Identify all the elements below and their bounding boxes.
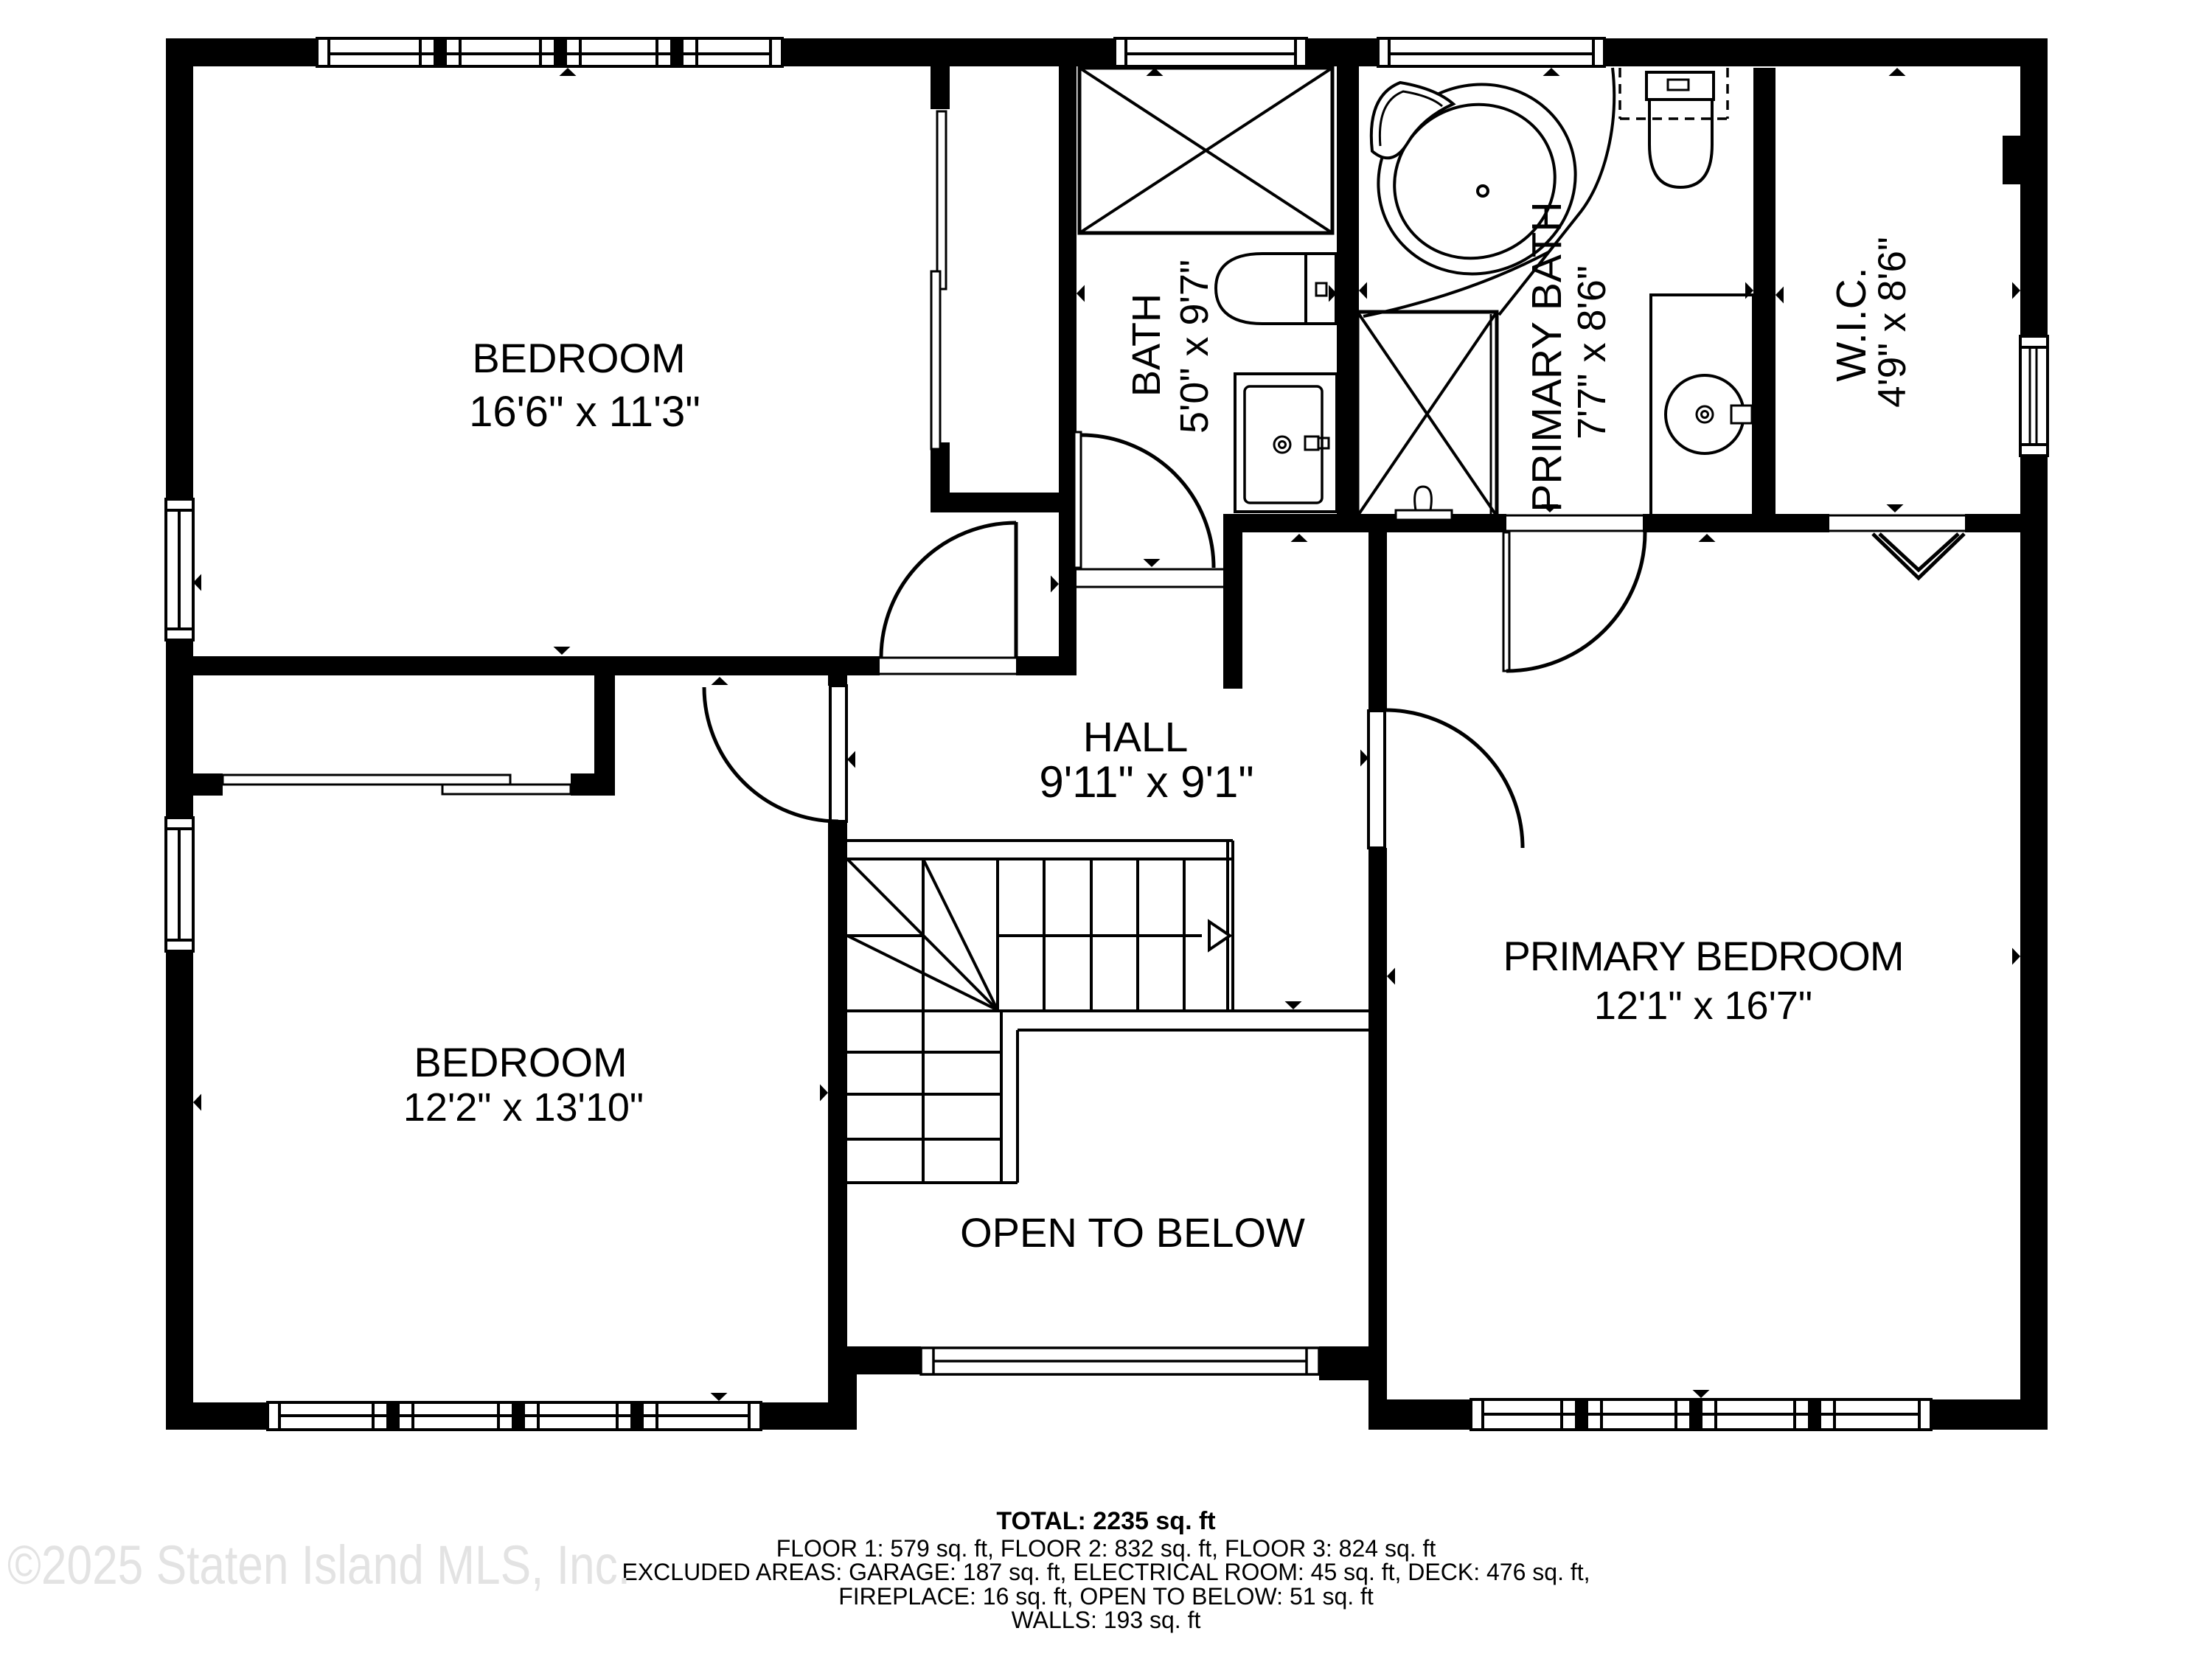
svg-text:OPEN TO BELOW: OPEN TO BELOW	[960, 1209, 1305, 1256]
svg-text:HALL: HALL	[1083, 714, 1189, 761]
svg-text:4'9" x 8'6": 4'9" x 8'6"	[1871, 237, 1914, 408]
svg-text:12'2" x 13'10": 12'2" x 13'10"	[403, 1085, 644, 1130]
svg-text:FIREPLACE: 16 sq. ft, OPEN TO: FIREPLACE: 16 sq. ft, OPEN TO BELOW: 51 …	[838, 1583, 1374, 1610]
svg-text:©2025 Staten Island MLS, Inc.: ©2025 Staten Island MLS, Inc.	[7, 1534, 630, 1596]
svg-text:12'1" x 16'7": 12'1" x 16'7"	[1594, 984, 1812, 1028]
svg-text:7'7" x 8'6": 7'7" x 8'6"	[1570, 265, 1614, 439]
svg-text:W.I.C.: W.I.C.	[1828, 267, 1875, 381]
svg-text:BATH: BATH	[1124, 293, 1169, 397]
svg-text:PRIMARY BATH: PRIMARY BATH	[1523, 201, 1571, 512]
svg-text:BEDROOM: BEDROOM	[414, 1039, 627, 1085]
svg-text:EXCLUDED AREAS: GARAGE: 187 sq: EXCLUDED AREAS: GARAGE: 187 sq. ft, ELEC…	[622, 1559, 1590, 1585]
svg-text:BEDROOM: BEDROOM	[472, 335, 685, 381]
svg-text:FLOOR 1: 579 sq. ft, FLOOR 2:: FLOOR 1: 579 sq. ft, FLOOR 2: 832 sq. ft…	[776, 1535, 1436, 1562]
svg-text:TOTAL: 2235 sq. ft: TOTAL: 2235 sq. ft	[996, 1507, 1215, 1535]
svg-text:5'0" x 9'7": 5'0" x 9'7"	[1172, 260, 1217, 434]
svg-text:9'11" x 9'1": 9'11" x 9'1"	[1039, 757, 1253, 807]
svg-text:PRIMARY BEDROOM: PRIMARY BEDROOM	[1503, 933, 1903, 979]
svg-text:16'6" x 11'3": 16'6" x 11'3"	[469, 388, 700, 436]
svg-text:WALLS: 193 sq. ft: WALLS: 193 sq. ft	[1012, 1607, 1201, 1633]
